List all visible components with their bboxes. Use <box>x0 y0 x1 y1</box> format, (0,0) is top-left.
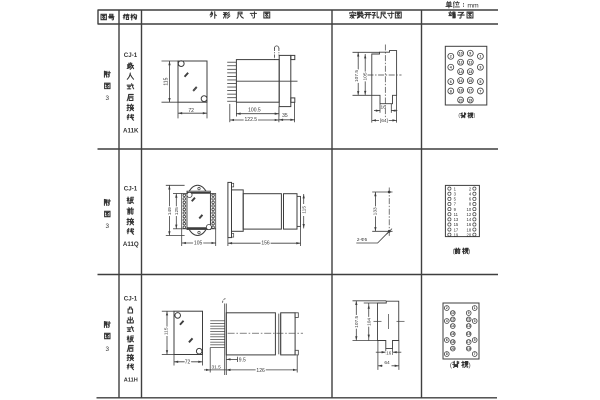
svg-text:(: ( <box>458 113 460 119</box>
svg-text:16: 16 <box>459 79 463 83</box>
svg-text:104: 104 <box>367 318 373 326</box>
svg-text:149: 149 <box>167 207 173 215</box>
svg-text:1: 1 <box>474 306 476 310</box>
svg-text:CJ-1: CJ-1 <box>124 186 138 193</box>
svg-text:9: 9 <box>468 311 470 315</box>
svg-text:): ) <box>474 113 476 119</box>
svg-text:12: 12 <box>451 318 455 322</box>
svg-text:): ) <box>468 248 470 255</box>
svg-text:4: 4 <box>446 319 448 323</box>
svg-text:11: 11 <box>468 61 472 65</box>
svg-text:3: 3 <box>474 319 476 323</box>
svg-text:4: 4 <box>450 66 452 70</box>
svg-text:1: 1 <box>479 55 481 59</box>
svg-text:13: 13 <box>467 324 471 328</box>
svg-text:16: 16 <box>386 350 391 355</box>
svg-text:3: 3 <box>106 223 110 230</box>
svg-text:7: 7 <box>479 89 481 93</box>
svg-text:18: 18 <box>459 89 463 93</box>
svg-text:9.5: 9.5 <box>239 358 246 364</box>
svg-text:2: 2 <box>450 55 452 59</box>
svg-text:105: 105 <box>362 72 368 80</box>
svg-text:19: 19 <box>468 98 472 102</box>
svg-text:mm: mm <box>467 2 479 9</box>
svg-text:20: 20 <box>451 347 455 351</box>
svg-text:115: 115 <box>302 206 308 214</box>
svg-text:156: 156 <box>261 241 270 247</box>
svg-text:2-Φ5: 2-Φ5 <box>357 237 368 242</box>
svg-text:19: 19 <box>467 347 471 351</box>
svg-text:64: 64 <box>384 360 390 366</box>
svg-text:12: 12 <box>459 61 463 65</box>
svg-text:17: 17 <box>468 89 472 93</box>
svg-text:8: 8 <box>450 89 452 93</box>
svg-text:72: 72 <box>188 108 194 114</box>
svg-text:15: 15 <box>467 332 471 336</box>
svg-text:17: 17 <box>467 340 471 344</box>
svg-text:CJ-1: CJ-1 <box>124 52 138 59</box>
svg-text:105: 105 <box>194 240 203 246</box>
svg-text:100.5: 100.5 <box>248 107 261 113</box>
svg-text:122.5: 122.5 <box>245 117 258 123</box>
svg-text:A11K: A11K <box>123 127 139 134</box>
svg-text:A11Q: A11Q <box>123 241 139 248</box>
svg-text:): ) <box>469 362 471 369</box>
svg-text:18: 18 <box>451 340 455 344</box>
svg-text:126: 126 <box>256 368 265 374</box>
svg-text:6: 6 <box>450 80 452 84</box>
svg-text:20: 20 <box>459 98 463 102</box>
svg-text:107.5: 107.5 <box>354 70 360 82</box>
svg-text:115: 115 <box>163 327 169 335</box>
svg-text:8: 8 <box>446 352 448 356</box>
svg-text:16: 16 <box>451 332 455 336</box>
svg-text:6: 6 <box>446 338 448 342</box>
svg-text:9: 9 <box>469 52 471 56</box>
svg-text:5: 5 <box>474 338 476 342</box>
svg-text:CJ-1: CJ-1 <box>124 296 138 303</box>
svg-text:11: 11 <box>467 318 471 322</box>
svg-text:3: 3 <box>479 66 481 70</box>
svg-text:19: 19 <box>454 232 459 237</box>
svg-text:16: 16 <box>381 105 387 111</box>
svg-text:72: 72 <box>185 360 191 366</box>
svg-text:115: 115 <box>163 77 169 85</box>
svg-text:[64]: [64] <box>380 118 388 124</box>
svg-text:35: 35 <box>282 113 288 119</box>
svg-text:10: 10 <box>451 311 455 315</box>
svg-text:14: 14 <box>451 324 455 328</box>
svg-text:A11H: A11H <box>124 377 138 383</box>
svg-text:5: 5 <box>479 80 481 84</box>
svg-text:3: 3 <box>106 95 110 102</box>
svg-text:107.5: 107.5 <box>354 315 360 327</box>
svg-text:13: 13 <box>468 70 472 74</box>
svg-text:2: 2 <box>446 306 448 310</box>
svg-text:20: 20 <box>467 232 472 237</box>
svg-text:3: 3 <box>106 346 110 353</box>
svg-text:7: 7 <box>474 352 476 356</box>
svg-text:133: 133 <box>373 207 379 215</box>
svg-text:14: 14 <box>459 70 463 74</box>
svg-text:(: ( <box>450 362 453 369</box>
svg-text:10: 10 <box>459 52 463 56</box>
svg-text:125: 125 <box>174 207 180 215</box>
svg-text:15: 15 <box>468 79 472 83</box>
svg-text:31.5: 31.5 <box>212 364 222 370</box>
